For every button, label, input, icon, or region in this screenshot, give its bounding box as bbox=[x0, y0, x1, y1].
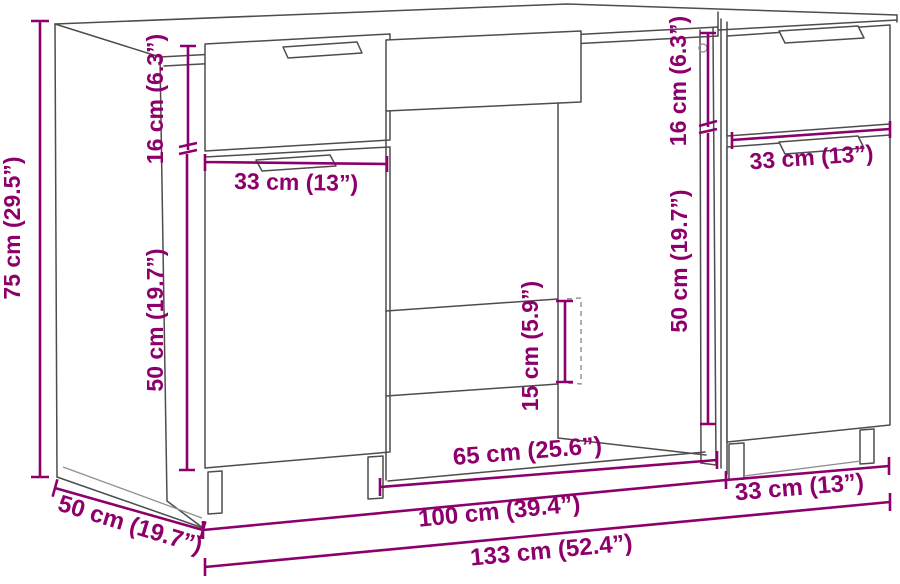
left-side-panel-back-edge bbox=[55, 24, 57, 477]
desk-diagram-canvas: 75 cm (29.5”) 16 cm (6.3”) 50 cm (19.7”)… bbox=[0, 0, 900, 584]
cabinet-door-front bbox=[727, 135, 890, 442]
dim-label-bottom-clearance: 15 cm (5.9”) bbox=[517, 281, 543, 411]
left-front-foot bbox=[208, 471, 222, 514]
dim-height-total: 75 cm (29.5”) bbox=[0, 21, 49, 477]
dim-label-drawer-width-left: 33 cm (13”) bbox=[234, 168, 358, 196]
cabinet-left-foot bbox=[729, 443, 744, 480]
dim-label-desk-width: 100 cm (39.4”) bbox=[417, 490, 582, 532]
dim-label-opening-width: 65 cm (25.6”) bbox=[452, 432, 603, 471]
dim-label-door-height-right: 50 cm (19.7”) bbox=[666, 189, 692, 332]
center-drawer-front bbox=[386, 31, 581, 111]
desktop-back-edge bbox=[55, 4, 897, 24]
dim-label-total-width: 133 cm (52.4”) bbox=[469, 529, 634, 571]
dimension-diagram: 75 cm (29.5”) 16 cm (6.3”) 50 cm (19.7”)… bbox=[0, 0, 900, 584]
dim-door-height-left: 50 cm (19.7”) bbox=[142, 154, 195, 470]
dim-label-door-height-left: 50 cm (19.7”) bbox=[142, 248, 168, 391]
desk-right-panel-front-line bbox=[700, 30, 701, 463]
dim-door-height-right: 50 cm (19.7”) bbox=[666, 133, 716, 424]
cabinet-right-foot bbox=[860, 429, 874, 464]
dim-label-drawer-height-left: 16 cm (6.3”) bbox=[142, 34, 168, 164]
dim-label-height-total: 75 cm (29.5”) bbox=[0, 156, 25, 299]
dim-drawer-height-left: 16 cm (6.3”) bbox=[142, 34, 197, 164]
left-door-front bbox=[205, 147, 390, 468]
dim-label-drawer-height-right: 16 cm (6.3”) bbox=[665, 16, 691, 146]
dim-drawer-height-right: 16 cm (6.3”) bbox=[665, 16, 717, 146]
